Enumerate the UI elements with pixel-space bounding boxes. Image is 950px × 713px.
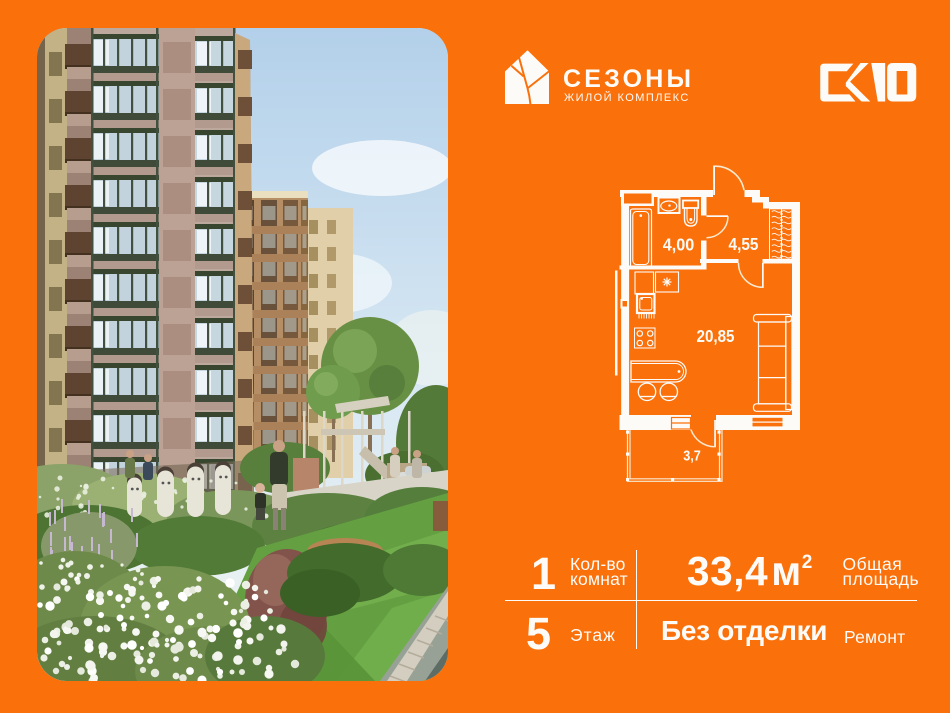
svg-text:4,00: 4,00	[663, 235, 695, 255]
svg-text:20,85: 20,85	[697, 326, 735, 346]
svg-text:3,7: 3,7	[683, 448, 701, 464]
svg-text:4,55: 4,55	[729, 234, 759, 254]
